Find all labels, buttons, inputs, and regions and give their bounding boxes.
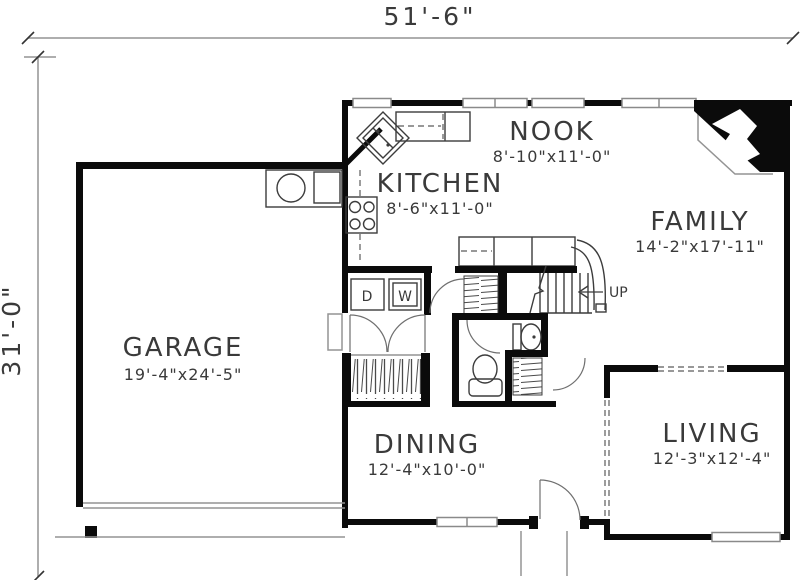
room-labels: NOOK 8'-10"x11'-0" KITCHEN 8'-6"x11'-0" … bbox=[123, 117, 772, 479]
stair-rail-outer bbox=[577, 240, 605, 310]
hall-closet bbox=[342, 353, 430, 407]
toilet bbox=[513, 324, 541, 350]
washer-label: W bbox=[398, 289, 412, 305]
room-dims-kitchen: 8'-6"x11'-0" bbox=[386, 199, 493, 218]
room-name-garage: GARAGE bbox=[123, 333, 244, 363]
room-name-family: FAMILY bbox=[650, 207, 749, 237]
room-dims-family: 14'-2"x17'-11" bbox=[635, 237, 765, 256]
room-dims-garage: 19'-4"x24'-5" bbox=[124, 365, 243, 384]
room-dims-nook: 8'-10"x11'-0" bbox=[493, 147, 612, 166]
stairs-up-label: UP bbox=[609, 285, 628, 301]
room-dims-living: 12'-3"x12'-4" bbox=[653, 449, 772, 468]
garage-door bbox=[55, 503, 345, 537]
room-name-dining: DINING bbox=[374, 430, 480, 460]
pedestal-sink bbox=[469, 355, 502, 396]
dining-living-opening bbox=[605, 400, 609, 520]
dimension-depth: 31'-0" bbox=[0, 51, 56, 580]
utility-counter bbox=[266, 170, 342, 207]
coat-closet bbox=[505, 350, 585, 407]
room-name-kitchen: KITCHEN bbox=[377, 169, 504, 199]
family-living-wall bbox=[604, 365, 790, 398]
floor-plan: 51'-6" 31'-0" bbox=[0, 0, 800, 580]
pantry bbox=[430, 273, 505, 318]
dryer-label: D bbox=[362, 289, 373, 305]
stair-break-line bbox=[530, 266, 546, 313]
room-name-living: LIVING bbox=[662, 419, 761, 449]
overall-width-label: 51'-6" bbox=[383, 2, 476, 31]
room-dims-dining: 12'-4"x10'-0" bbox=[368, 460, 487, 479]
floor-plan-drawing: 51'-6" 31'-0" bbox=[0, 0, 800, 580]
peninsula-counter bbox=[459, 237, 575, 266]
overall-depth-label: 31'-0" bbox=[0, 283, 26, 376]
range bbox=[346, 170, 377, 264]
room-name-nook: NOOK bbox=[509, 117, 594, 147]
dimension-width: 51'-6" bbox=[22, 2, 799, 44]
fireplace bbox=[694, 100, 790, 174]
kitchen-corner-sink bbox=[344, 112, 409, 166]
garage-stoop bbox=[328, 314, 342, 350]
